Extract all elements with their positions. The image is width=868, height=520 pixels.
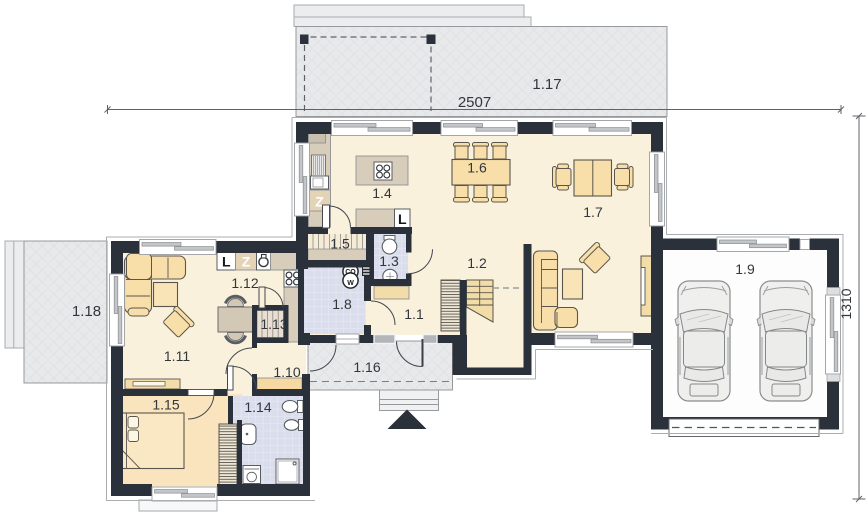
svg-text:1.10: 1.10 bbox=[273, 364, 300, 380]
svg-text:1.1: 1.1 bbox=[404, 306, 424, 322]
svg-text:1.9: 1.9 bbox=[735, 261, 755, 277]
svg-text:1.7: 1.7 bbox=[583, 204, 603, 220]
svg-text:1.15: 1.15 bbox=[152, 397, 179, 413]
svg-text:CO: CO bbox=[345, 269, 356, 276]
svg-text:1.12: 1.12 bbox=[231, 275, 258, 291]
svg-text:1.17: 1.17 bbox=[532, 76, 561, 93]
svg-text:1.2: 1.2 bbox=[467, 255, 487, 271]
svg-text:1.6: 1.6 bbox=[467, 160, 487, 176]
svg-text:1310: 1310 bbox=[838, 288, 854, 319]
svg-text:1.18: 1.18 bbox=[72, 303, 101, 320]
svg-text:1.16: 1.16 bbox=[353, 359, 380, 375]
svg-text:2507: 2507 bbox=[458, 94, 491, 111]
svg-text:1.4: 1.4 bbox=[372, 185, 392, 201]
svg-text:1.8: 1.8 bbox=[332, 296, 352, 312]
svg-text:L: L bbox=[222, 254, 231, 270]
svg-text:1.11: 1.11 bbox=[164, 348, 190, 364]
svg-text:1.14: 1.14 bbox=[244, 399, 271, 415]
svg-text:1.3: 1.3 bbox=[379, 253, 399, 269]
svg-text:W: W bbox=[347, 280, 354, 287]
svg-text:1.5: 1.5 bbox=[330, 236, 350, 252]
svg-text:L: L bbox=[398, 211, 407, 227]
svg-text:Z: Z bbox=[242, 254, 251, 270]
